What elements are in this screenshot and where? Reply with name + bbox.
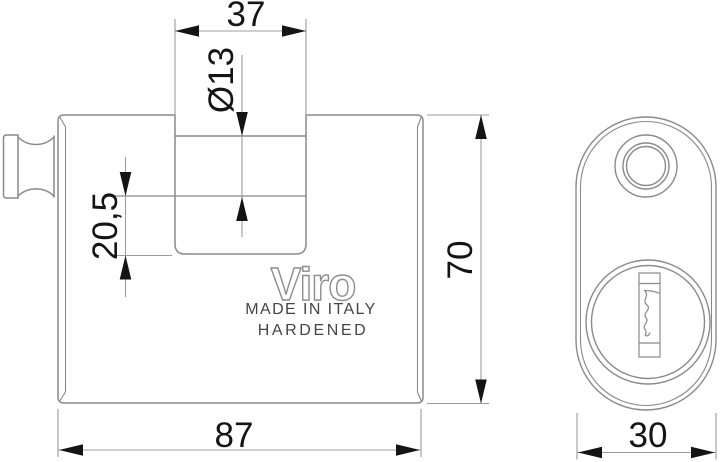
arrow-left [578, 447, 602, 459]
side-view [576, 117, 716, 410]
knob-cap [4, 135, 19, 198]
side-body-inner-line [581, 122, 712, 406]
body-height-label: 70 [441, 241, 480, 280]
technical-drawing-page: Viro MADE IN ITALY HARDENED [0, 0, 720, 462]
keyway-wave-profile [644, 291, 650, 336]
arrow-up [236, 197, 248, 221]
arrow-down [475, 380, 487, 404]
side-body-outline [576, 117, 716, 410]
made-in-italy-label: MADE IN ITALY [245, 301, 376, 318]
shackle-offset-label: 20,5 [86, 192, 125, 260]
pin-hole-inner-circle [627, 147, 666, 186]
knob-neck-bottom [18, 189, 54, 196]
cylinder-inner-circle [592, 266, 705, 379]
arrow-right [282, 25, 306, 37]
body-width-label: 87 [215, 416, 254, 455]
dimensions [58, 19, 716, 460]
arrow-right [396, 444, 420, 456]
shackle-knob [4, 135, 55, 198]
padlock-drawing: Viro MADE IN ITALY HARDENED [0, 0, 720, 462]
arrow-down [236, 112, 248, 136]
hardened-label: HARDENED [258, 322, 369, 339]
body-depth-label: 30 [629, 416, 668, 455]
shackle-diameter-label: Ø13 [202, 47, 241, 113]
arrow-left [59, 444, 83, 456]
arrow-left [175, 25, 199, 37]
branding: Viro MADE IN ITALY HARDENED [245, 258, 376, 339]
arrow-up [475, 115, 487, 139]
cylinder-outer-circle [586, 260, 710, 384]
keyway-wave-top [645, 291, 661, 294]
knob-neck-top [18, 137, 54, 145]
front-view [4, 115, 424, 403]
pin-boss-circle [615, 135, 677, 197]
slot-width-label: 37 [227, 0, 266, 34]
arrow-right [691, 447, 715, 459]
pin-hole-outer-circle [623, 143, 669, 189]
keyway-outline [639, 273, 660, 357]
keyway [639, 273, 660, 357]
